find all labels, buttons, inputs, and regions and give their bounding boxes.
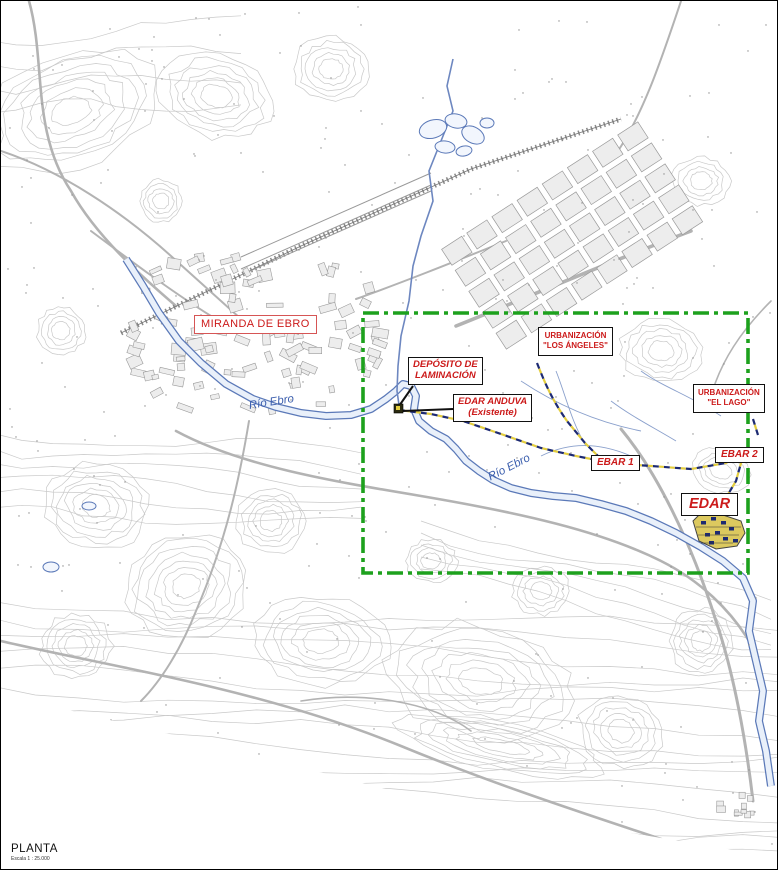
plan-sheet: MIRANDA DE EBRO DEPÓSITO DE LAMINACIÓN E… bbox=[0, 0, 778, 870]
leader-lines bbox=[399, 386, 453, 411]
deposito-marker bbox=[394, 404, 403, 413]
urbanizacion-el-lago-label: URBANIZACIÓN "EL LAGO" bbox=[693, 384, 765, 413]
map-base-layer bbox=[1, 1, 777, 859]
city-label: MIRANDA DE EBRO bbox=[194, 315, 317, 334]
el-lago-label-line1: URBANIZACIÓN bbox=[698, 388, 760, 399]
edar-label: EDAR bbox=[681, 493, 738, 516]
title-block: PLANTA Escala 1 : 25.000 bbox=[11, 843, 58, 862]
contour-lines-layer bbox=[1, 16, 777, 859]
stream-north bbox=[397, 59, 453, 405]
drawing-scale: Escala 1 : 25.000 bbox=[11, 856, 58, 862]
drawing-title: PLANTA bbox=[11, 843, 58, 855]
city-blocks-layer bbox=[126, 253, 754, 818]
roads-layer bbox=[1, 1, 771, 839]
urbanizacion-los-angeles-label: URBANIZACIÓN "LOS ÁNGELES" bbox=[538, 327, 613, 356]
ebar2-label: EBAR 2 bbox=[715, 447, 764, 463]
deposito-label-line2: LAMINACIÓN bbox=[413, 371, 478, 382]
spot-dots-layer bbox=[7, 6, 772, 849]
edar-anduva-label: EDAR ANDUVA (Existente) bbox=[453, 394, 532, 422]
edar-anduva-label-line2: (Existente) bbox=[458, 408, 527, 419]
canals-layer bbox=[521, 371, 721, 456]
los-angeles-label-line1: URBANIZACIÓN bbox=[543, 331, 608, 342]
deposito-laminacion-label: DEPÓSITO DE LAMINACIÓN bbox=[408, 357, 483, 385]
el-lago-label-line2: "EL LAGO" bbox=[698, 398, 760, 409]
map-canvas bbox=[1, 1, 777, 869]
ebar1-label: EBAR 1 bbox=[591, 455, 640, 471]
los-angeles-label-line2: "LOS ÁNGELES" bbox=[543, 341, 608, 352]
